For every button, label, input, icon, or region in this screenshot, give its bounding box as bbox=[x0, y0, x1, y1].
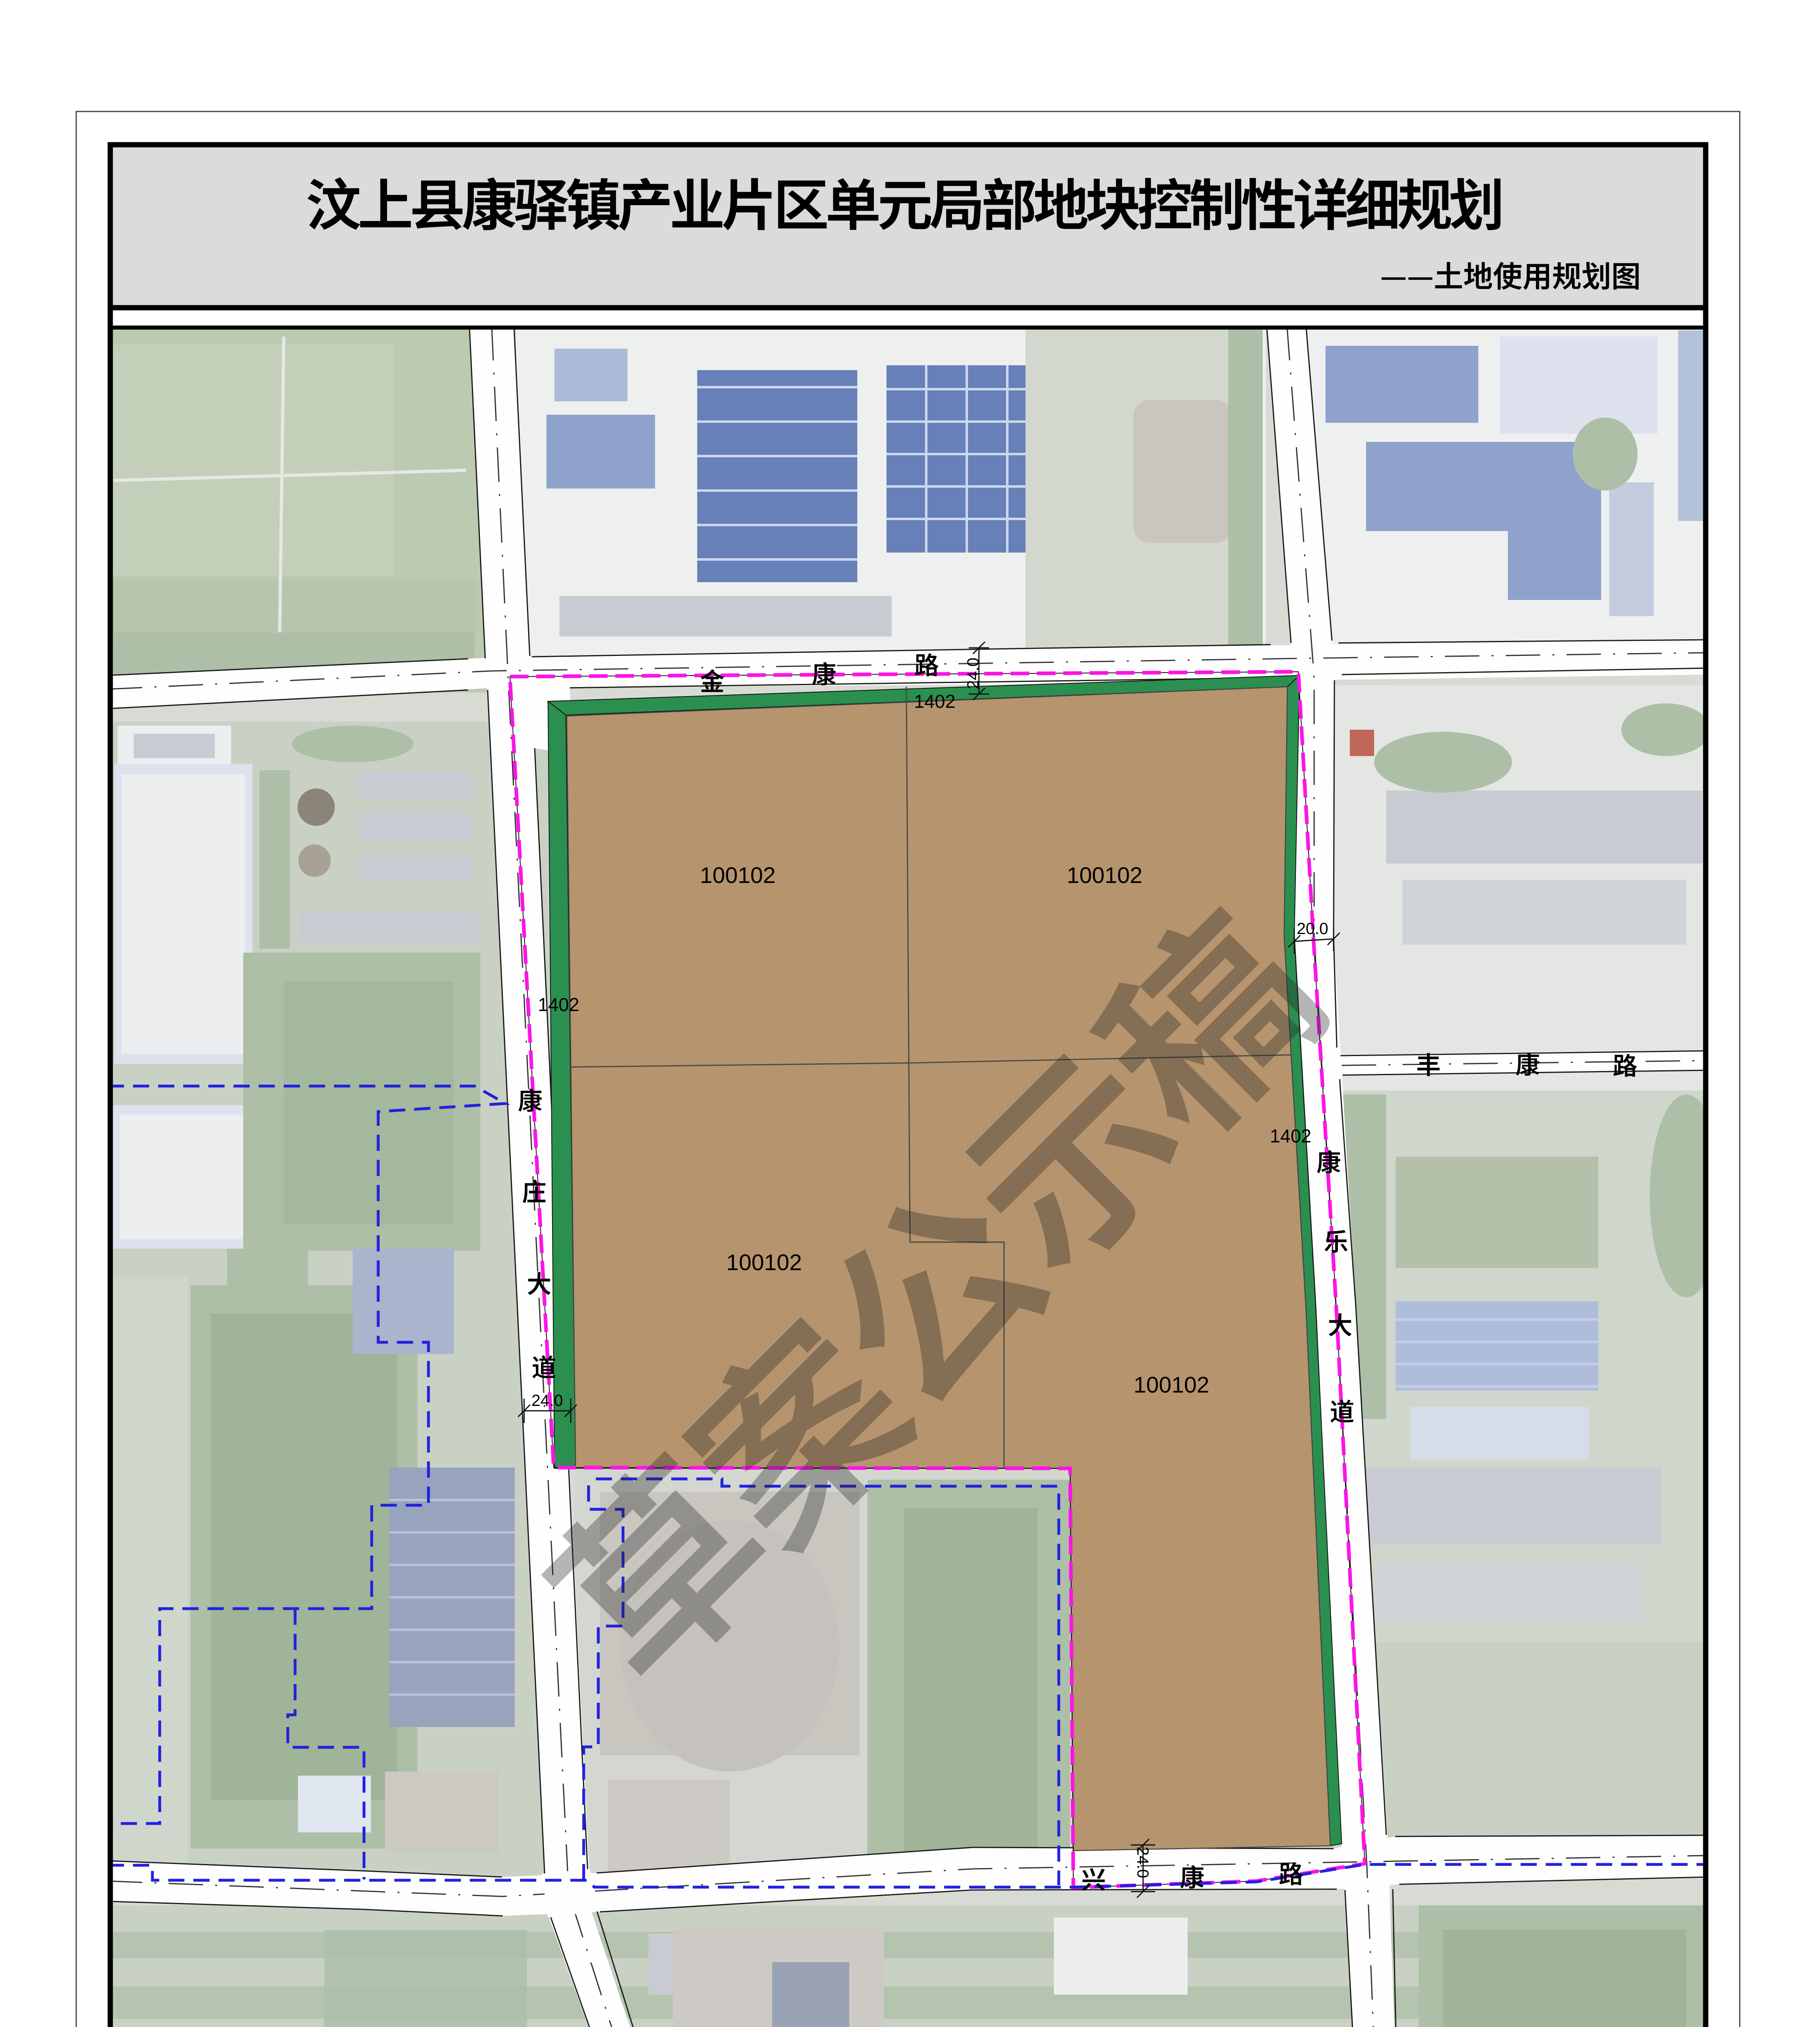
svg-text:100102: 100102 bbox=[1067, 862, 1143, 888]
svg-text:100102: 100102 bbox=[700, 862, 776, 888]
svg-text:1402: 1402 bbox=[1270, 1125, 1311, 1146]
svg-text:24.0: 24.0 bbox=[1134, 1847, 1152, 1878]
svg-text:1402: 1402 bbox=[914, 691, 955, 712]
svg-text:100102: 100102 bbox=[726, 1249, 802, 1275]
svg-text:1402: 1402 bbox=[538, 994, 579, 1015]
svg-text:24.0: 24.0 bbox=[964, 658, 982, 689]
svg-text:24.0: 24.0 bbox=[531, 1392, 563, 1410]
svg-text:100102: 100102 bbox=[1134, 1372, 1210, 1397]
svg-text:20.0: 20.0 bbox=[1297, 920, 1328, 938]
